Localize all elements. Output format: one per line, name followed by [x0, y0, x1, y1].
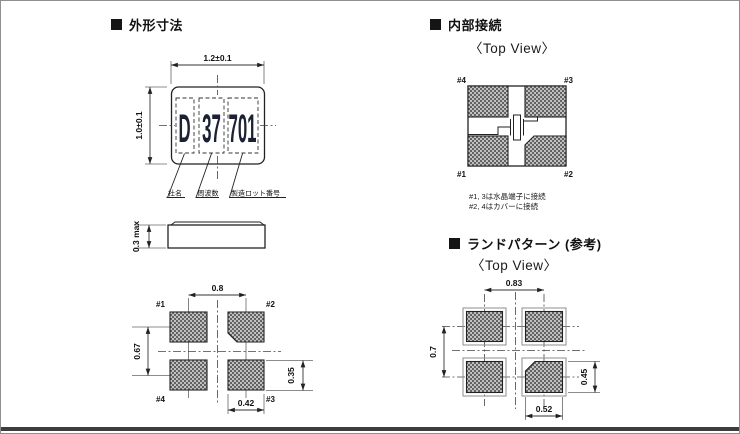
- bottom-pin-label-4: #4: [156, 395, 165, 404]
- legend-frequency-label: 周波数: [198, 189, 219, 198]
- marking-frequency-code: 37: [202, 107, 221, 151]
- technical-drawing-svg: 1.2±0.1 1.0±0.1 D 37 701 社名 周波数: [1, 1, 739, 433]
- land-pattern-drawing: 0.83 0.7 0.45 0.52: [428, 278, 600, 420]
- bottom-pin-label-2: #2: [266, 300, 275, 309]
- dim-bottom-pad-height: 0.35: [286, 367, 296, 384]
- internal-pad-1: [468, 136, 508, 166]
- dim-package-thickness: 0.3 max: [131, 221, 141, 252]
- dim-land-pad-width: 0.52: [536, 404, 553, 414]
- datasheet-page: 外形寸法 内部接続 〈Top View〉 #1, 3は水晶端子に接続 #2, 4…: [0, 0, 740, 434]
- internal-pin-label-4: #4: [457, 76, 466, 85]
- package-marking: D 37 701: [178, 107, 256, 151]
- dim-bottom-pitch-x: 0.8: [212, 283, 224, 293]
- marking-company-code: D: [178, 107, 190, 151]
- marking-lot-code: 701: [228, 107, 256, 151]
- land-pad-top-right: [522, 308, 566, 345]
- dim-package-width: 1.2±0.1: [203, 53, 232, 63]
- internal-connection-drawing: #4 #3 #1 #2: [457, 76, 573, 179]
- dim-land-pad-height: 0.45: [579, 368, 589, 385]
- legend-company-label: 社名: [168, 189, 182, 198]
- page-footer-rule: [1, 427, 739, 431]
- internal-pin-label-2: #2: [564, 170, 573, 179]
- bottom-pin-label-3: #3: [266, 395, 275, 404]
- dim-land-pitch-y: 0.7: [428, 346, 438, 358]
- land-pad-bottom-left: [463, 358, 506, 396]
- package-top-view-drawing: 1.2±0.1 1.0±0.1 D 37 701 社名 周波数: [134, 53, 286, 198]
- internal-pad-2: [525, 136, 566, 166]
- bottom-pad-2: [228, 312, 264, 342]
- package-side-view-drawing: 0.3 max: [131, 221, 265, 252]
- internal-pin-label-1: #1: [457, 170, 466, 179]
- internal-pad-3: [525, 86, 566, 117]
- internal-pin-label-3: #3: [564, 76, 573, 85]
- internal-pad-4: [468, 86, 508, 117]
- bottom-pad-view-drawing: 0.8 0.67 0.35 0.42 #1 #2 #4 #3: [132, 283, 313, 414]
- bottom-pad-3: [228, 360, 264, 390]
- bottom-pad-1: [170, 312, 207, 342]
- bottom-pad-4: [170, 360, 207, 390]
- dim-land-pitch-x: 0.83: [506, 278, 523, 288]
- legend-lot-label: 製造ロット番号: [231, 189, 280, 198]
- land-pad-bottom-right: [522, 358, 566, 396]
- land-pad-top-left: [463, 308, 506, 345]
- dim-bottom-pitch-y: 0.67: [132, 343, 142, 360]
- bottom-pin-label-1: #1: [156, 300, 165, 309]
- dim-package-height: 1.0±0.1: [134, 111, 144, 140]
- dim-bottom-pad-width: 0.42: [238, 398, 255, 408]
